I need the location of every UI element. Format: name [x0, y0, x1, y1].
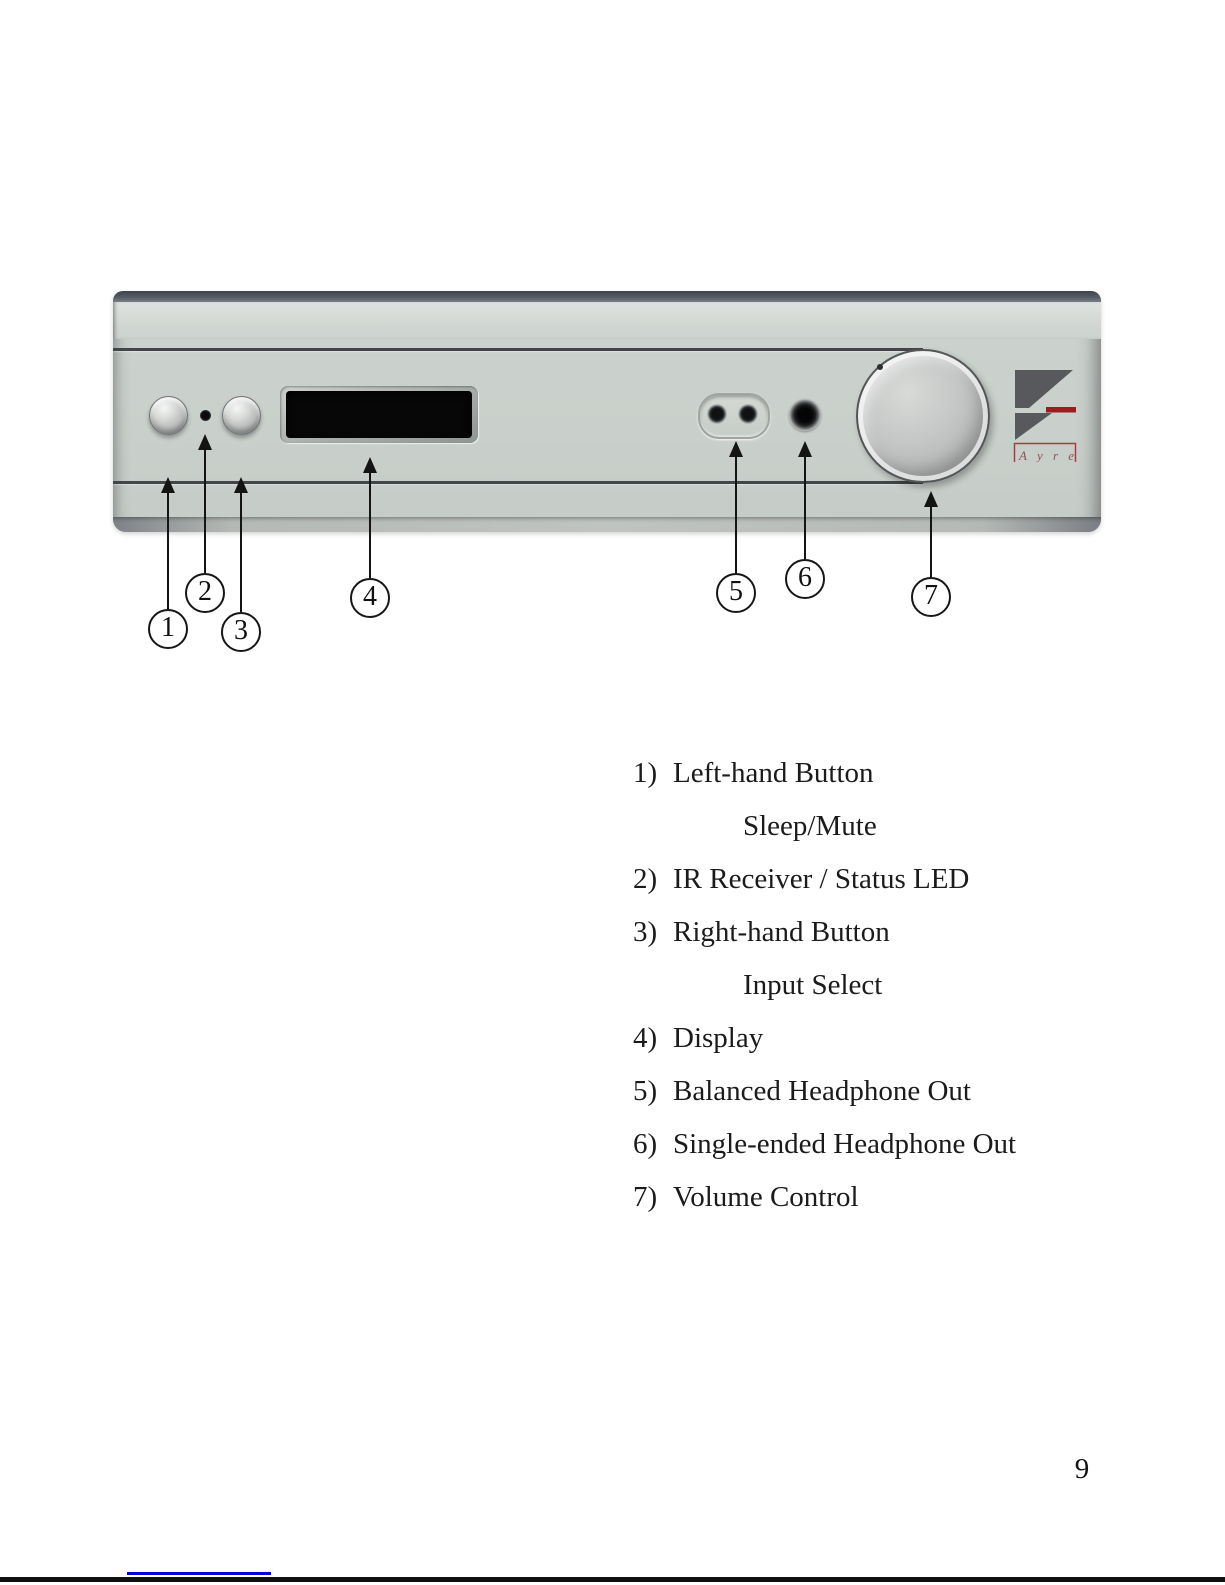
legend-item-3: 3) Right-hand Button	[633, 906, 1016, 959]
callout-line	[735, 454, 737, 573]
callout-5: 5	[716, 441, 756, 613]
legend-item-6: 6) Single-ended Headphone Out	[633, 1118, 1016, 1171]
callout-6: 6	[785, 441, 825, 599]
callout-circle-1: 1	[148, 609, 188, 649]
left-hand-button	[149, 396, 188, 435]
panel-bottom-edge	[113, 517, 1101, 532]
callout-7: 7	[911, 491, 951, 617]
legend-item-number: 1)	[633, 747, 673, 800]
page-number: 9	[1066, 1453, 1098, 1486]
ayre-logo: A y r e	[1000, 366, 1080, 462]
legend-item-label: Left-hand Button	[673, 747, 874, 800]
manual-page: A y r e 1 2 3 4 5 6 7 1)	[0, 0, 1225, 1585]
callout-circle-6: 6	[785, 559, 825, 599]
legend-item-number: 3)	[633, 906, 673, 959]
legend-item-5: 5) Balanced Headphone Out	[633, 1065, 1016, 1118]
legend-item-label: Right-hand Button	[673, 906, 890, 959]
panel-groove-upper	[113, 348, 923, 351]
legend-item-number: 5)	[633, 1065, 673, 1118]
legend-list: 1) Left-hand Button Sleep/Mute 2) IR Rec…	[633, 747, 1016, 1224]
callout-line	[204, 447, 206, 573]
legend-item-number: 7)	[633, 1171, 673, 1224]
callout-circle-3: 3	[221, 612, 261, 652]
callout-circle-2: 2	[185, 573, 225, 613]
front-panel-image: A y r e	[113, 291, 1101, 532]
legend-item-label: Balanced Headphone Out	[673, 1065, 971, 1118]
callout-line	[369, 470, 371, 578]
callout-line	[930, 504, 932, 577]
legend-item-label: Single-ended Headphone Out	[673, 1118, 1016, 1171]
ayre-wordmark: A y r e	[1018, 448, 1078, 462]
footer-link-underline[interactable]	[127, 1572, 271, 1575]
legend-item-4: 4) Display	[633, 1012, 1016, 1065]
legend-item-number: 2)	[633, 853, 673, 906]
volume-control-knob	[856, 349, 990, 483]
legend-item-2: 2) IR Receiver / Status LED	[633, 853, 1016, 906]
ir-receiver-status-led	[200, 410, 211, 421]
ayre-logo-upper-shape	[1015, 370, 1073, 408]
panel-top-lip	[113, 302, 1101, 339]
ayre-logo-red-bar	[1046, 407, 1076, 413]
callout-4: 4	[350, 457, 390, 618]
callout-1: 1	[148, 477, 188, 649]
callout-circle-4: 4	[350, 578, 390, 618]
balanced-jack-hole-left	[707, 404, 727, 424]
legend-item-label: Display	[673, 1012, 763, 1065]
legend-item-3-sub: Input Select	[633, 959, 1016, 1012]
balanced-headphone-out-jack	[698, 393, 770, 439]
callout-circle-5: 5	[716, 573, 756, 613]
callout-circle-7: 7	[911, 577, 951, 617]
legend-item-1: 1) Left-hand Button	[633, 747, 1016, 800]
knob-indicator-dot	[877, 364, 883, 370]
ayre-logo-lower-shape	[1015, 413, 1052, 440]
right-hand-button	[222, 396, 261, 435]
panel-top-edge	[113, 291, 1101, 302]
page-bottom-rule	[0, 1577, 1225, 1582]
callout-line	[804, 454, 806, 559]
legend-item-number: 4)	[633, 1012, 673, 1065]
display-screen	[286, 391, 472, 438]
callout-line	[167, 490, 169, 609]
legend-item-label: IR Receiver / Status LED	[673, 853, 969, 906]
legend-item-1-sub: Sleep/Mute	[633, 800, 1016, 853]
legend-item-label: Volume Control	[673, 1171, 859, 1224]
single-ended-headphone-out-jack	[789, 399, 821, 431]
callout-line	[240, 490, 242, 612]
legend-item-number: 6)	[633, 1118, 673, 1171]
callout-3: 3	[221, 477, 261, 652]
legend-item-7: 7) Volume Control	[633, 1171, 1016, 1224]
balanced-jack-hole-right	[738, 404, 758, 424]
callout-2: 2	[185, 434, 225, 613]
display-bezel	[280, 386, 478, 443]
